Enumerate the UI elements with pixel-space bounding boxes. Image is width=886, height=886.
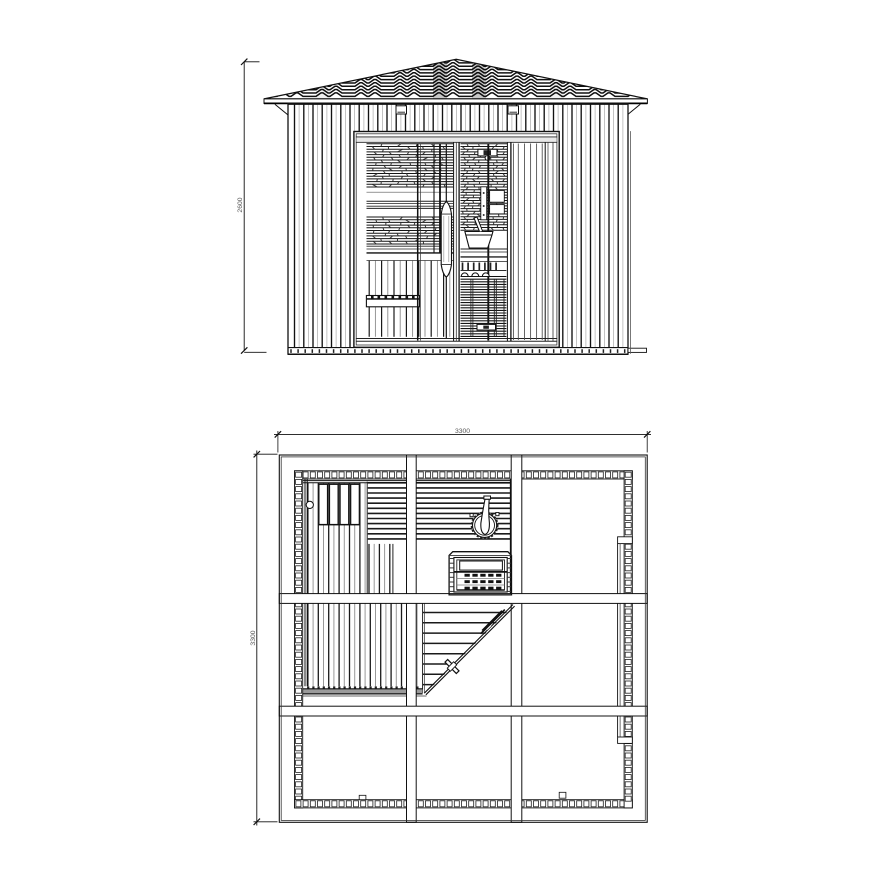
svg-text:3300: 3300	[250, 630, 257, 645]
svg-text:2600: 2600	[237, 197, 244, 212]
svg-text:3300: 3300	[455, 428, 470, 435]
